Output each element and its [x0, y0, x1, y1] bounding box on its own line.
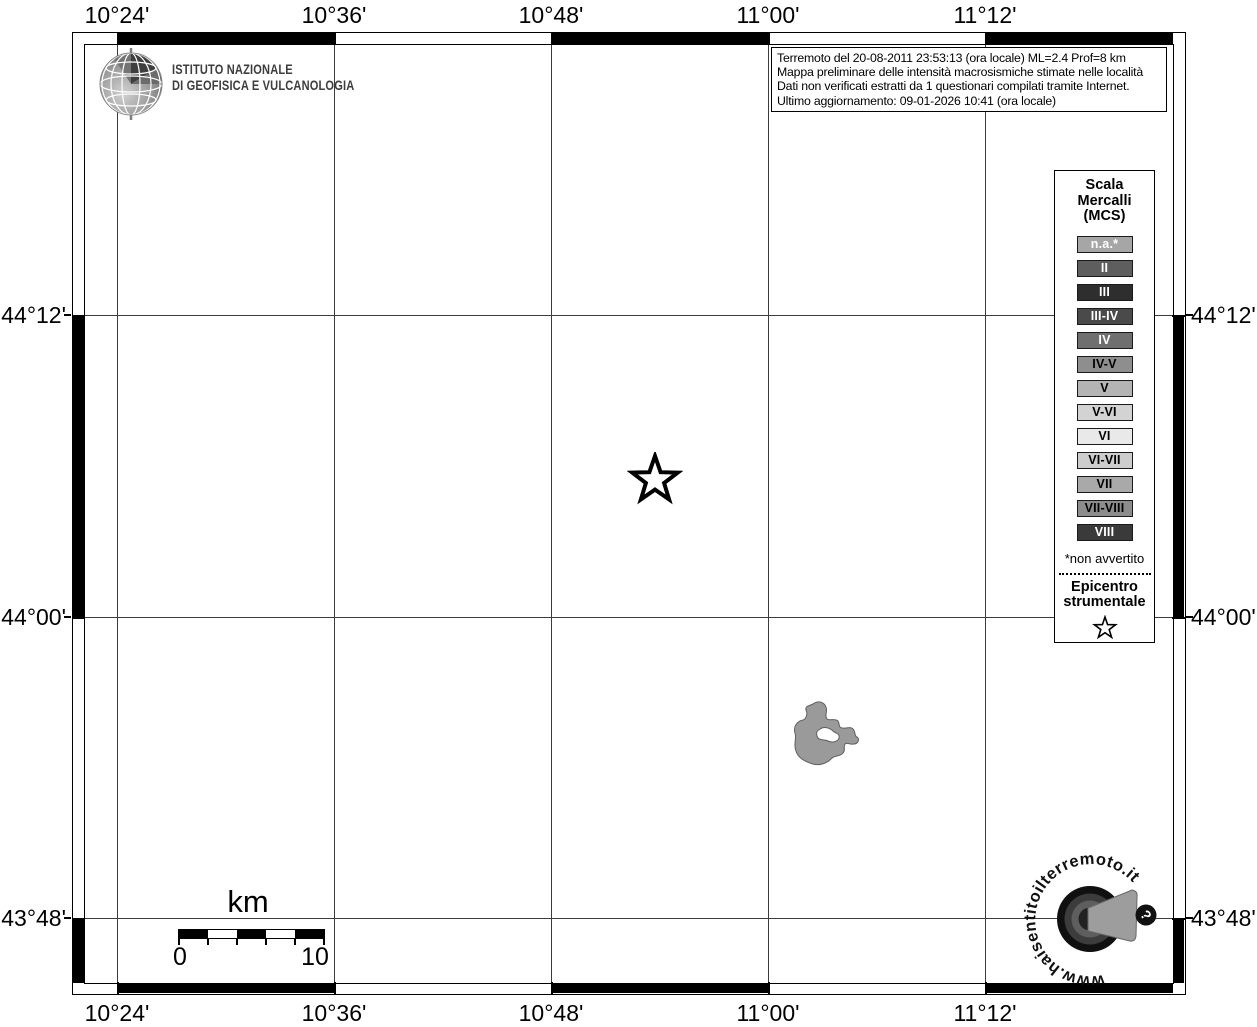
gridline-parallel: [85, 617, 1172, 618]
axis-label-lon: 11°00': [736, 2, 799, 29]
axis-label-lon: 10°24': [85, 2, 150, 29]
scalebar-segment: [237, 930, 266, 938]
legend-intensity-box: II: [1077, 260, 1133, 277]
scalebar-end-label: 10: [301, 943, 329, 972]
legend-items: n.a.* II III III-IV IV IV-V V V-VI VI VI…: [1077, 236, 1133, 548]
axis-label-lon: 10°48': [519, 1000, 584, 1027]
gridline-meridian: [985, 45, 986, 982]
info-line-event: Terremoto del 20-08-2011 23:53:13 (ora l…: [777, 51, 1161, 65]
ingv-logo-text: ISTITUTO NAZIONALE DI GEOFISICA E VULCAN…: [172, 62, 354, 94]
ingv-globe-icon: [96, 46, 168, 122]
frame-band-segment: [551, 33, 768, 44]
axis-label-lon: 10°36': [302, 2, 367, 29]
axis-label-lat: 44°12': [0, 303, 66, 327]
frame-tick: [72, 315, 85, 317]
frame-band-segment: [985, 33, 1173, 44]
gridline-meridian: [551, 45, 552, 982]
info-line-updated: Ultimo aggiornamento: 09-01-2026 10:41 (…: [777, 94, 1161, 108]
legend-intensity-box: VI-VII: [1077, 452, 1133, 469]
gridline-meridian: [768, 45, 769, 982]
axis-label-lon: 10°48': [519, 2, 584, 29]
gridline-meridian: [117, 45, 118, 982]
info-line-map-type: Mappa preliminare delle intensità macros…: [777, 65, 1161, 79]
epicenter-star-icon: [627, 452, 683, 508]
axis-label-lon: 11°12': [953, 1000, 1016, 1027]
frame-tick: [1172, 315, 1185, 317]
legend-intensity-box: VIII: [1077, 524, 1133, 541]
frame-tick: [985, 32, 987, 45]
gridline-meridian: [334, 45, 335, 982]
earthquake-info-box: Terremoto del 20-08-2011 23:53:13 (ora l…: [771, 47, 1167, 112]
haisentitoilterremoto-logo: ? www.haisentitoilterremoto.it: [1020, 848, 1200, 998]
axis-label-lon: 10°36': [302, 1000, 367, 1027]
frame-band-segment: [117, 33, 334, 44]
legend-star-icon: [1092, 615, 1118, 641]
axis-label-lon: 11°00': [736, 1000, 799, 1027]
axis-label-lat: 44°00': [1191, 605, 1256, 629]
legend-intensity-box: VII: [1077, 476, 1133, 493]
legend-epicenter-line: strumentale: [1063, 595, 1145, 611]
scalebar-segment: [208, 930, 237, 938]
scalebar: [178, 929, 325, 939]
legend-intensity-box: V: [1077, 380, 1133, 397]
frame-tick: [768, 982, 770, 995]
frame-tick: [117, 982, 119, 995]
scalebar-tick: [294, 938, 296, 945]
axis-label-lon: 11°12': [953, 2, 1016, 29]
legend-title-line: Mercalli: [1078, 194, 1132, 210]
legend-intensity-box: n.a.*: [1077, 236, 1133, 253]
legend-separator: [1059, 573, 1151, 575]
legend-intensity-box: III-IV: [1077, 308, 1133, 325]
scalebar-segment: [179, 930, 208, 938]
legend-title: Scala Mercalli (MCS): [1078, 178, 1132, 225]
legend-intensity-box: IV: [1077, 332, 1133, 349]
lake-shape: [788, 698, 866, 774]
map-inner-frame: [84, 44, 1174, 984]
scalebar-tick: [236, 938, 238, 945]
legend-intensity-box: VII-VIII: [1077, 500, 1133, 517]
frame-tick: [72, 918, 85, 920]
legend-epicenter-label: Epicentro strumentale: [1063, 580, 1145, 611]
legend-title-line: Scala: [1078, 178, 1132, 194]
scalebar-unit-label: km: [216, 884, 280, 920]
legend-footnote: *non avvertito: [1065, 551, 1145, 566]
legend-title-line: (MCS): [1078, 209, 1132, 225]
frame-tick: [985, 982, 987, 995]
legend-intensity-box: VI: [1077, 428, 1133, 445]
scalebar-start-label: 0: [173, 943, 187, 972]
frame-band-segment: [73, 918, 84, 983]
axis-label-lat: 44°00': [0, 605, 66, 629]
axis-label-lat: 43°48': [0, 906, 66, 930]
legend-epicenter-line: Epicentro: [1063, 580, 1145, 596]
frame-tick: [768, 32, 770, 45]
axis-label-lon: 10°24': [85, 1000, 150, 1027]
frame-tick: [334, 982, 336, 995]
scalebar-segment: [295, 930, 324, 938]
frame-tick: [334, 32, 336, 45]
scalebar-tick: [265, 938, 267, 945]
frame-band-segment: [1173, 315, 1184, 617]
mercalli-scale-legend: Scala Mercalli (MCS) n.a.* II III III-IV…: [1054, 170, 1155, 643]
frame-band-segment: [73, 315, 84, 617]
frame-tick: [1172, 617, 1185, 619]
gridline-parallel: [85, 315, 1172, 316]
frame-band-segment: [551, 983, 768, 993]
frame-tick: [117, 32, 119, 45]
scalebar-tick: [207, 938, 209, 945]
frame-tick: [72, 617, 85, 619]
info-line-data-source: Dati non verificati estratti da 1 questi…: [777, 79, 1161, 93]
legend-intensity-box: IV-V: [1077, 356, 1133, 373]
frame-tick: [551, 982, 553, 995]
scalebar-segment: [266, 930, 295, 938]
legend-intensity-box: III: [1077, 284, 1133, 301]
frame-band-segment: [117, 983, 334, 993]
frame-tick: [551, 32, 553, 45]
axis-label-lat: 43°48': [1191, 906, 1256, 930]
legend-intensity-box: V-VI: [1077, 404, 1133, 421]
ingv-logo-line1: ISTITUTO NAZIONALE: [172, 62, 354, 78]
ingv-logo-line2: DI GEOFISICA E VULCANOLOGIA: [172, 78, 354, 94]
axis-label-lat: 44°12': [1191, 303, 1256, 327]
